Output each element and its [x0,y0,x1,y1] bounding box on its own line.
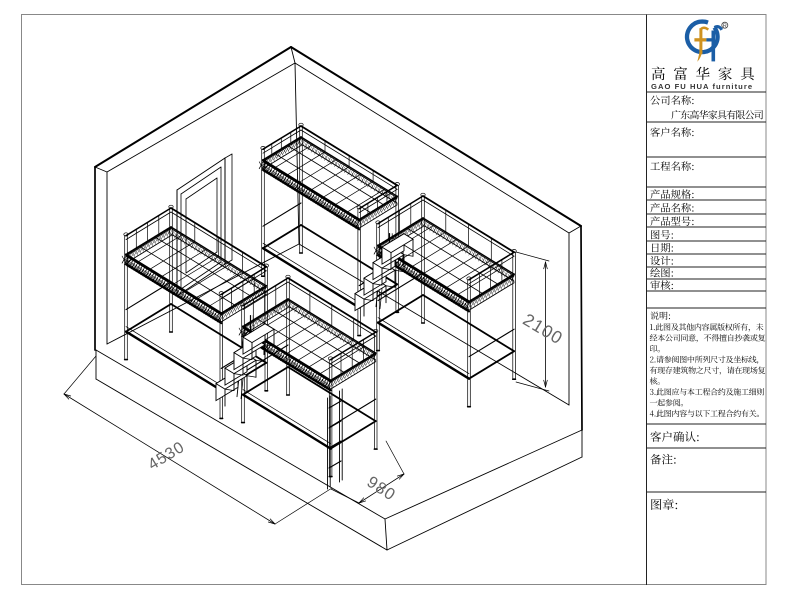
svg-text:GAO FU HUA furniture: GAO FU HUA furniture [651,82,753,91]
svg-text:R: R [723,23,727,29]
